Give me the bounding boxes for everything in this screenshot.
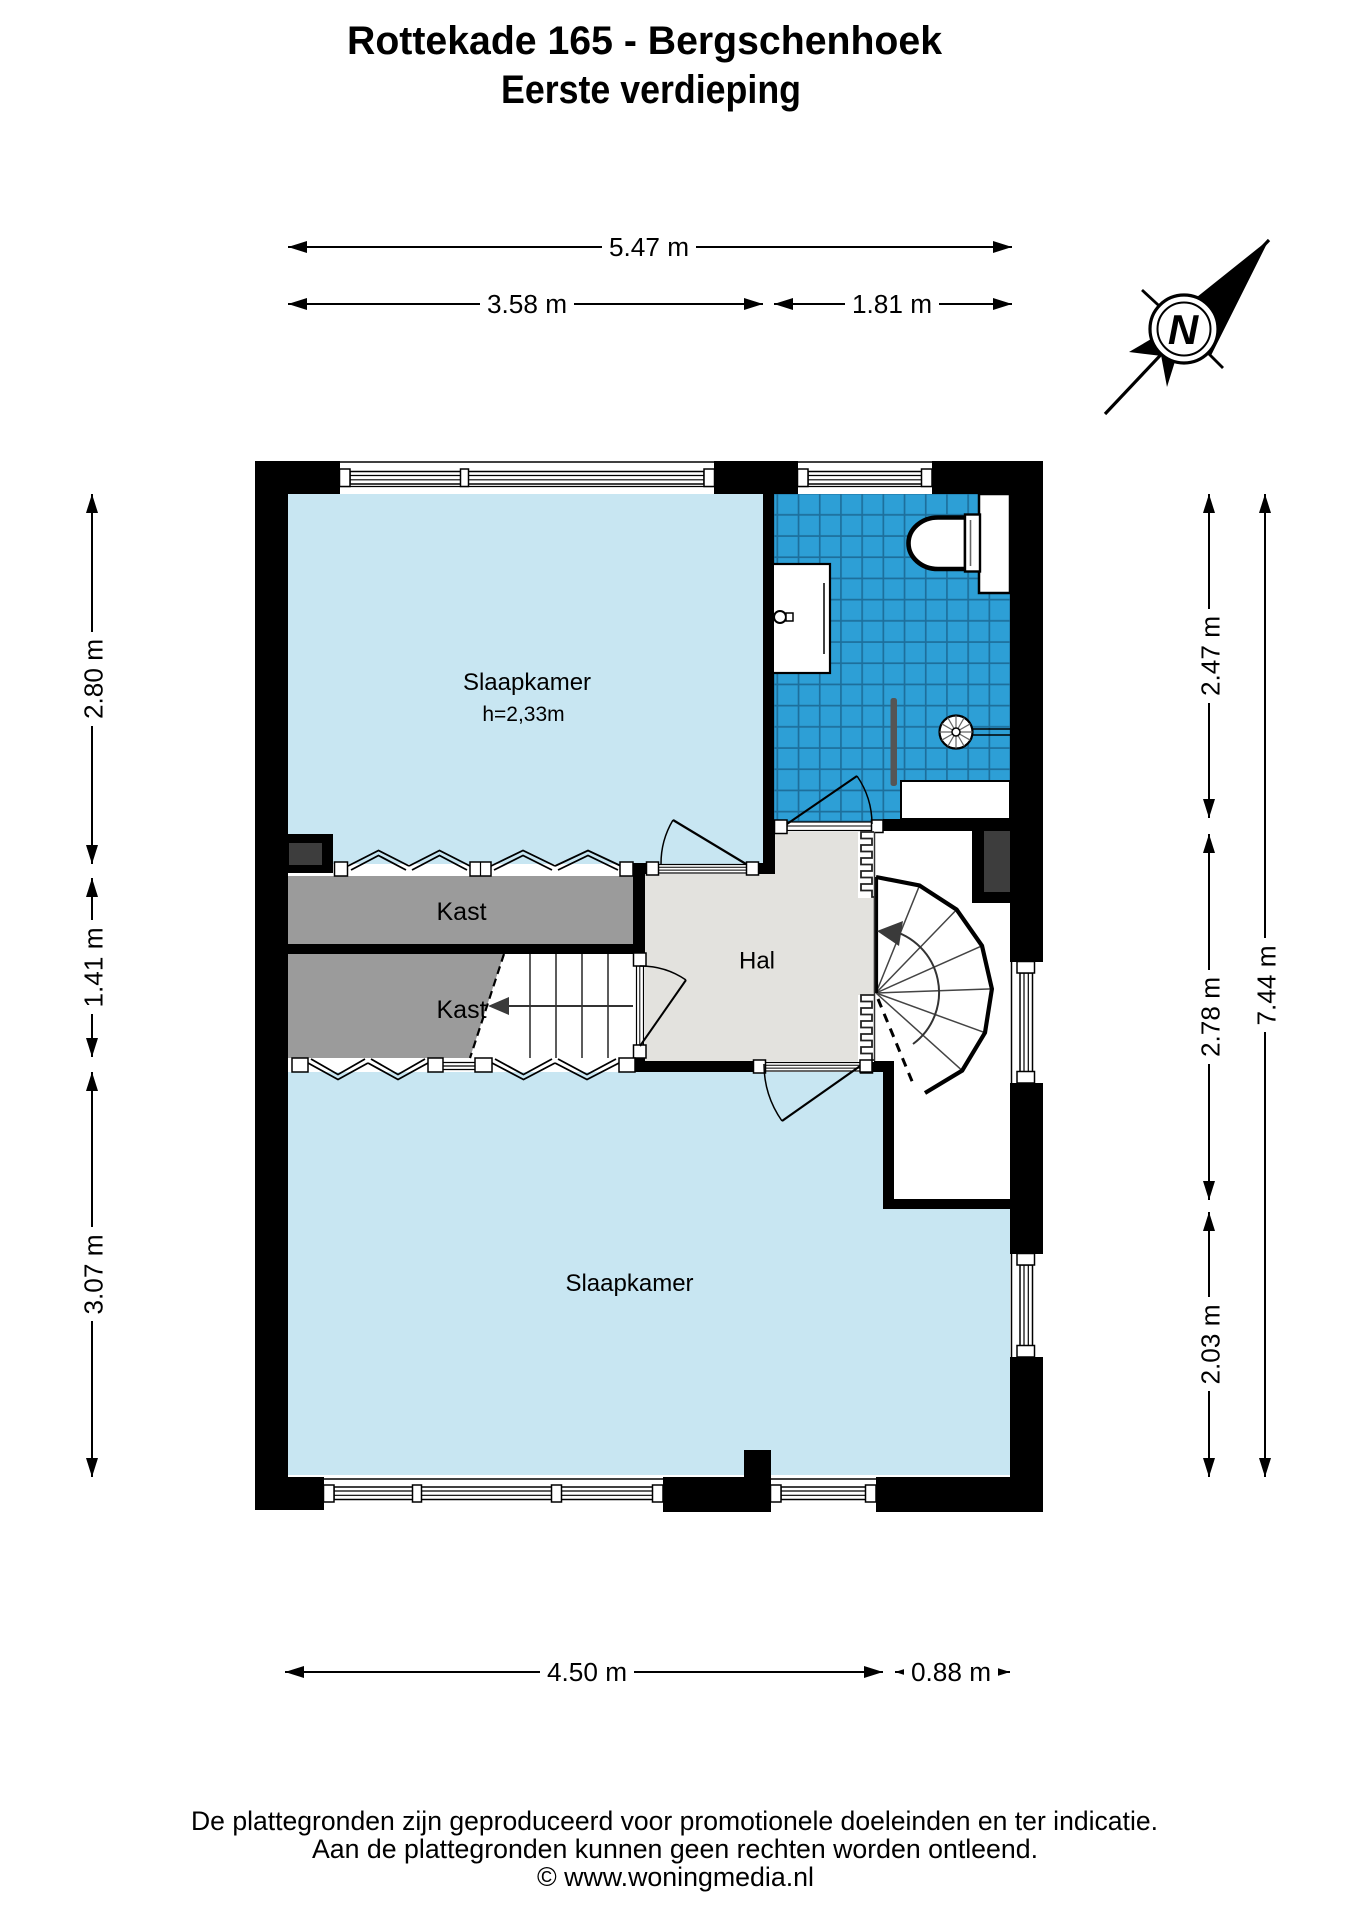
svg-text:Eerste verdieping: Eerste verdieping xyxy=(501,68,801,112)
svg-text:h=2,33m: h=2,33m xyxy=(482,703,564,726)
svg-text:Slaapkamer: Slaapkamer xyxy=(565,1270,693,1297)
svg-text:Kast: Kast xyxy=(436,996,486,1024)
svg-text:2.03 m: 2.03 m xyxy=(1196,1304,1226,1384)
svg-text:4.50 m: 4.50 m xyxy=(547,1657,627,1687)
svg-text:5.47 m: 5.47 m xyxy=(609,232,689,262)
svg-text:N: N xyxy=(1168,306,1200,353)
svg-text:1.81 m: 1.81 m xyxy=(852,289,932,319)
svg-text:7.44 m: 7.44 m xyxy=(1252,945,1282,1025)
svg-text:Hal: Hal xyxy=(739,948,775,975)
svg-text:© www.woningmedia.nl: © www.woningmedia.nl xyxy=(537,1862,814,1892)
svg-text:3.07 m: 3.07 m xyxy=(79,1234,109,1314)
svg-text:Slaapkamer: Slaapkamer xyxy=(463,669,591,696)
svg-text:Aan de plattegronden kunnen ge: Aan de plattegronden kunnen geen rechten… xyxy=(312,1834,1038,1864)
svg-text:0.88 m: 0.88 m xyxy=(911,1657,991,1687)
svg-text:Kast: Kast xyxy=(436,898,486,926)
svg-text:Rottekade 165 - Bergschenhoek: Rottekade 165 - Bergschenhoek xyxy=(347,19,943,63)
svg-text:De plattegronden zijn geproduc: De plattegronden zijn geproduceerd voor … xyxy=(191,1806,1158,1836)
svg-text:3.58 m: 3.58 m xyxy=(487,289,567,319)
svg-text:2.80 m: 2.80 m xyxy=(79,639,109,719)
svg-text:2.47 m: 2.47 m xyxy=(1196,616,1226,696)
svg-text:2.78 m: 2.78 m xyxy=(1196,977,1226,1057)
svg-text:1.41 m: 1.41 m xyxy=(79,927,109,1007)
